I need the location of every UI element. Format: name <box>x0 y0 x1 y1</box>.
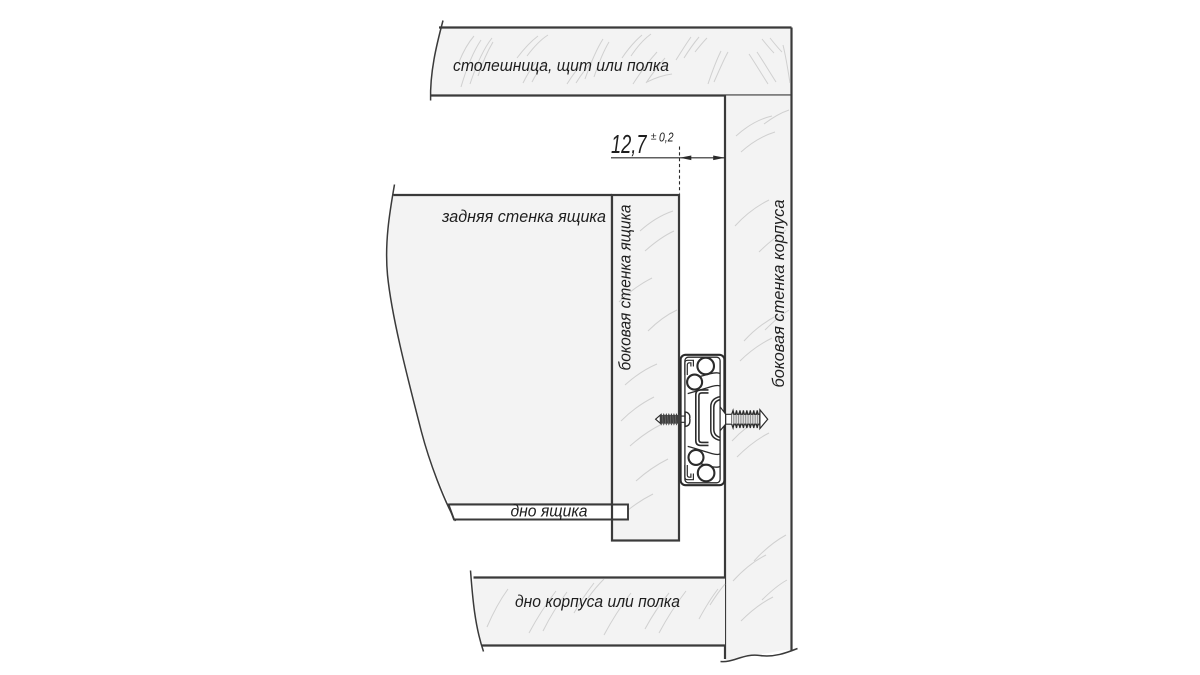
svg-text:столешница, щит или полка: столешница, щит или полка <box>453 57 669 75</box>
svg-text:боковая стенка корпуса: боковая стенка корпуса <box>770 200 788 388</box>
svg-text:дно корпуса или полка: дно корпуса или полка <box>515 593 680 611</box>
svg-text:боковая стенка ящика: боковая стенка ящика <box>617 205 635 371</box>
svg-text:12,7: 12,7 <box>611 131 647 159</box>
svg-text:задняя стенка ящика: задняя стенка ящика <box>441 208 606 226</box>
svg-text:0,2: 0,2 <box>659 131 674 145</box>
svg-text:±: ± <box>651 131 657 143</box>
svg-text:дно ящика: дно ящика <box>511 503 588 521</box>
